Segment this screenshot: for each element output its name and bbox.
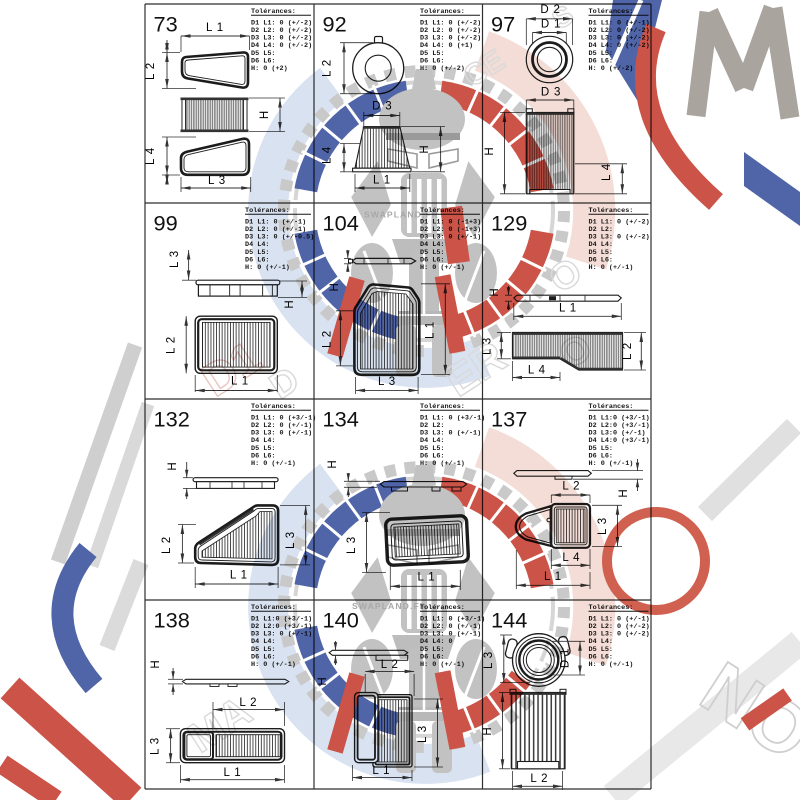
svg-text:L 1: L 1 (224, 767, 242, 779)
svg-text:H: H (327, 459, 339, 468)
svg-text:L 3: L 3 (150, 737, 162, 755)
svg-text:138: 138 (154, 608, 190, 632)
svg-text:137: 137 (491, 407, 527, 431)
svg-text:92: 92 (323, 12, 347, 36)
svg-text:H: 0 (+2): H: 0 (+2) (251, 65, 288, 73)
svg-text:Tolérances:: Tolérances: (251, 8, 296, 16)
svg-text:L 2: L 2 (161, 536, 173, 554)
svg-text:L 2: L 2 (622, 342, 634, 360)
svg-text:73: 73 (154, 12, 178, 36)
svg-text:L 3: L 3 (208, 175, 226, 187)
svg-text:99: 99 (154, 211, 178, 235)
svg-text:H: H (259, 110, 271, 119)
svg-text:Tolérances:: Tolérances: (420, 8, 465, 16)
svg-text:L 2: L 2 (145, 62, 157, 80)
svg-text:H: 0 (+/-1): H: 0 (+/-1) (251, 460, 296, 468)
svg-text:L 2: L 2 (165, 336, 177, 354)
svg-text:144: 144 (491, 608, 527, 632)
svg-text:L 1: L 1 (230, 570, 248, 582)
svg-text:H: H (618, 488, 630, 497)
svg-text:H: 0 (+/-1): H: 0 (+/-1) (589, 460, 634, 468)
svg-text:132: 132 (154, 407, 190, 431)
svg-text:L 2: L 2 (530, 773, 548, 785)
svg-text:H: 0 (+/-1): H: 0 (+/-1) (589, 661, 634, 669)
svg-text:104: 104 (323, 211, 359, 235)
svg-text:SWAPLAND.FR: SWAPLAND.FR (352, 601, 427, 611)
svg-text:L 3: L 3 (169, 250, 181, 268)
svg-text:H: H (167, 461, 179, 470)
svg-text:140: 140 (323, 608, 359, 632)
svg-text:H: H (484, 146, 496, 155)
svg-text:H: H (150, 659, 162, 668)
svg-text:L 3: L 3 (346, 536, 358, 554)
svg-text:L 4: L 4 (145, 147, 157, 165)
svg-text:129: 129 (491, 211, 527, 235)
svg-text:Tolérances:: Tolérances: (420, 403, 465, 411)
svg-text:L 4: L 4 (528, 365, 546, 377)
svg-text:134: 134 (323, 407, 359, 431)
svg-text:L 1: L 1 (559, 303, 577, 315)
svg-text:Tolérances:: Tolérances: (251, 403, 296, 411)
svg-text:L 1: L 1 (206, 22, 224, 34)
svg-text:Tolérances:: Tolérances: (589, 403, 634, 411)
svg-text:97: 97 (491, 12, 515, 36)
svg-text:SWAPLAND.FR: SWAPLAND.FR (364, 210, 439, 220)
